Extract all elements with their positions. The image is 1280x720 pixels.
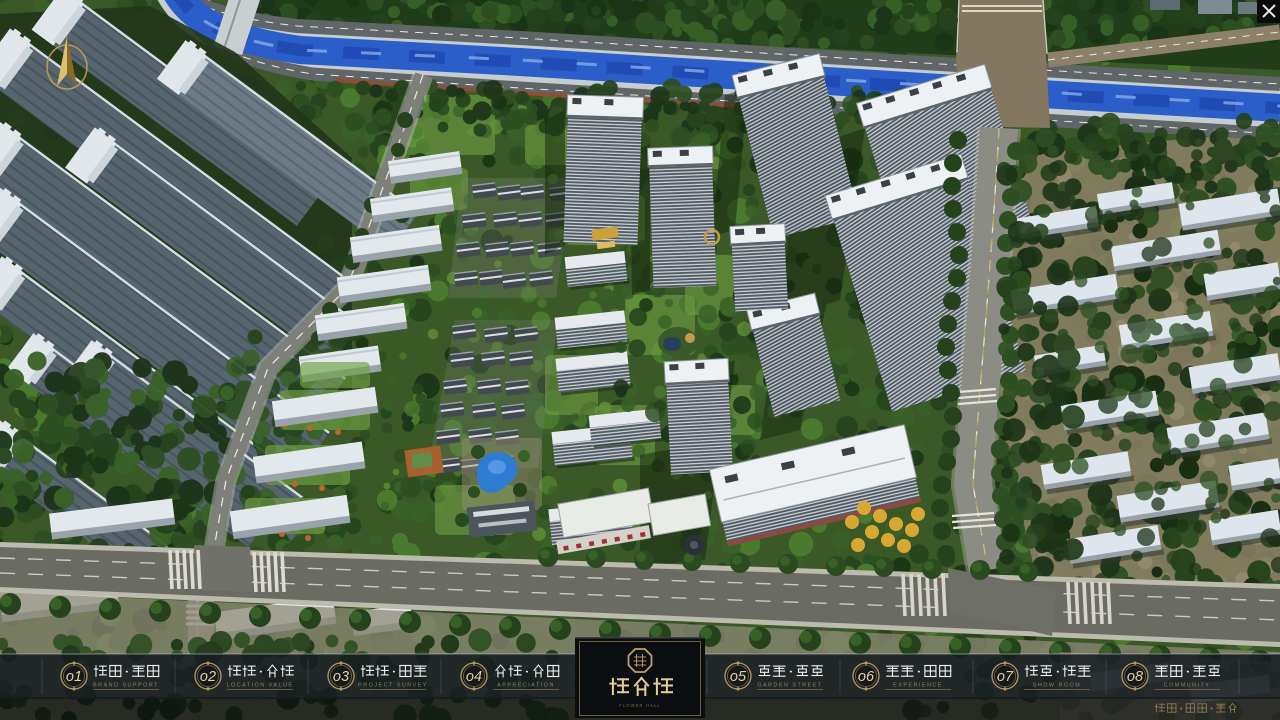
svg-text:FLOWER HALL: FLOWER HALL	[619, 703, 661, 708]
svg-text:o2: o2	[200, 669, 216, 685]
svg-text:o5: o5	[730, 669, 747, 685]
svg-text:COMMUNITY: COMMUNITY	[1164, 683, 1211, 689]
svg-text:PROJECT SURVEY: PROJECT SURVEY	[358, 683, 428, 689]
svg-text:o3: o3	[333, 669, 349, 685]
svg-text:APPRECIATION: APPRECIATION	[497, 683, 555, 689]
svg-text:SHOW ROOM: SHOW ROOM	[1033, 683, 1082, 689]
svg-text:o7: o7	[997, 669, 1014, 685]
svg-text:GARDEN STREET: GARDEN STREET	[757, 683, 822, 689]
svg-text:LOCATION VALUE: LOCATION VALUE	[227, 683, 294, 689]
svg-text:o6: o6	[858, 669, 875, 685]
svg-text:o8: o8	[1127, 669, 1143, 685]
svg-text:BRAND SUPPORT: BRAND SUPPORT	[93, 683, 159, 689]
svg-text:EXPERIENCE: EXPERIENCE	[893, 683, 943, 689]
svg-text:o1: o1	[66, 669, 82, 685]
svg-text:o4: o4	[466, 669, 482, 685]
